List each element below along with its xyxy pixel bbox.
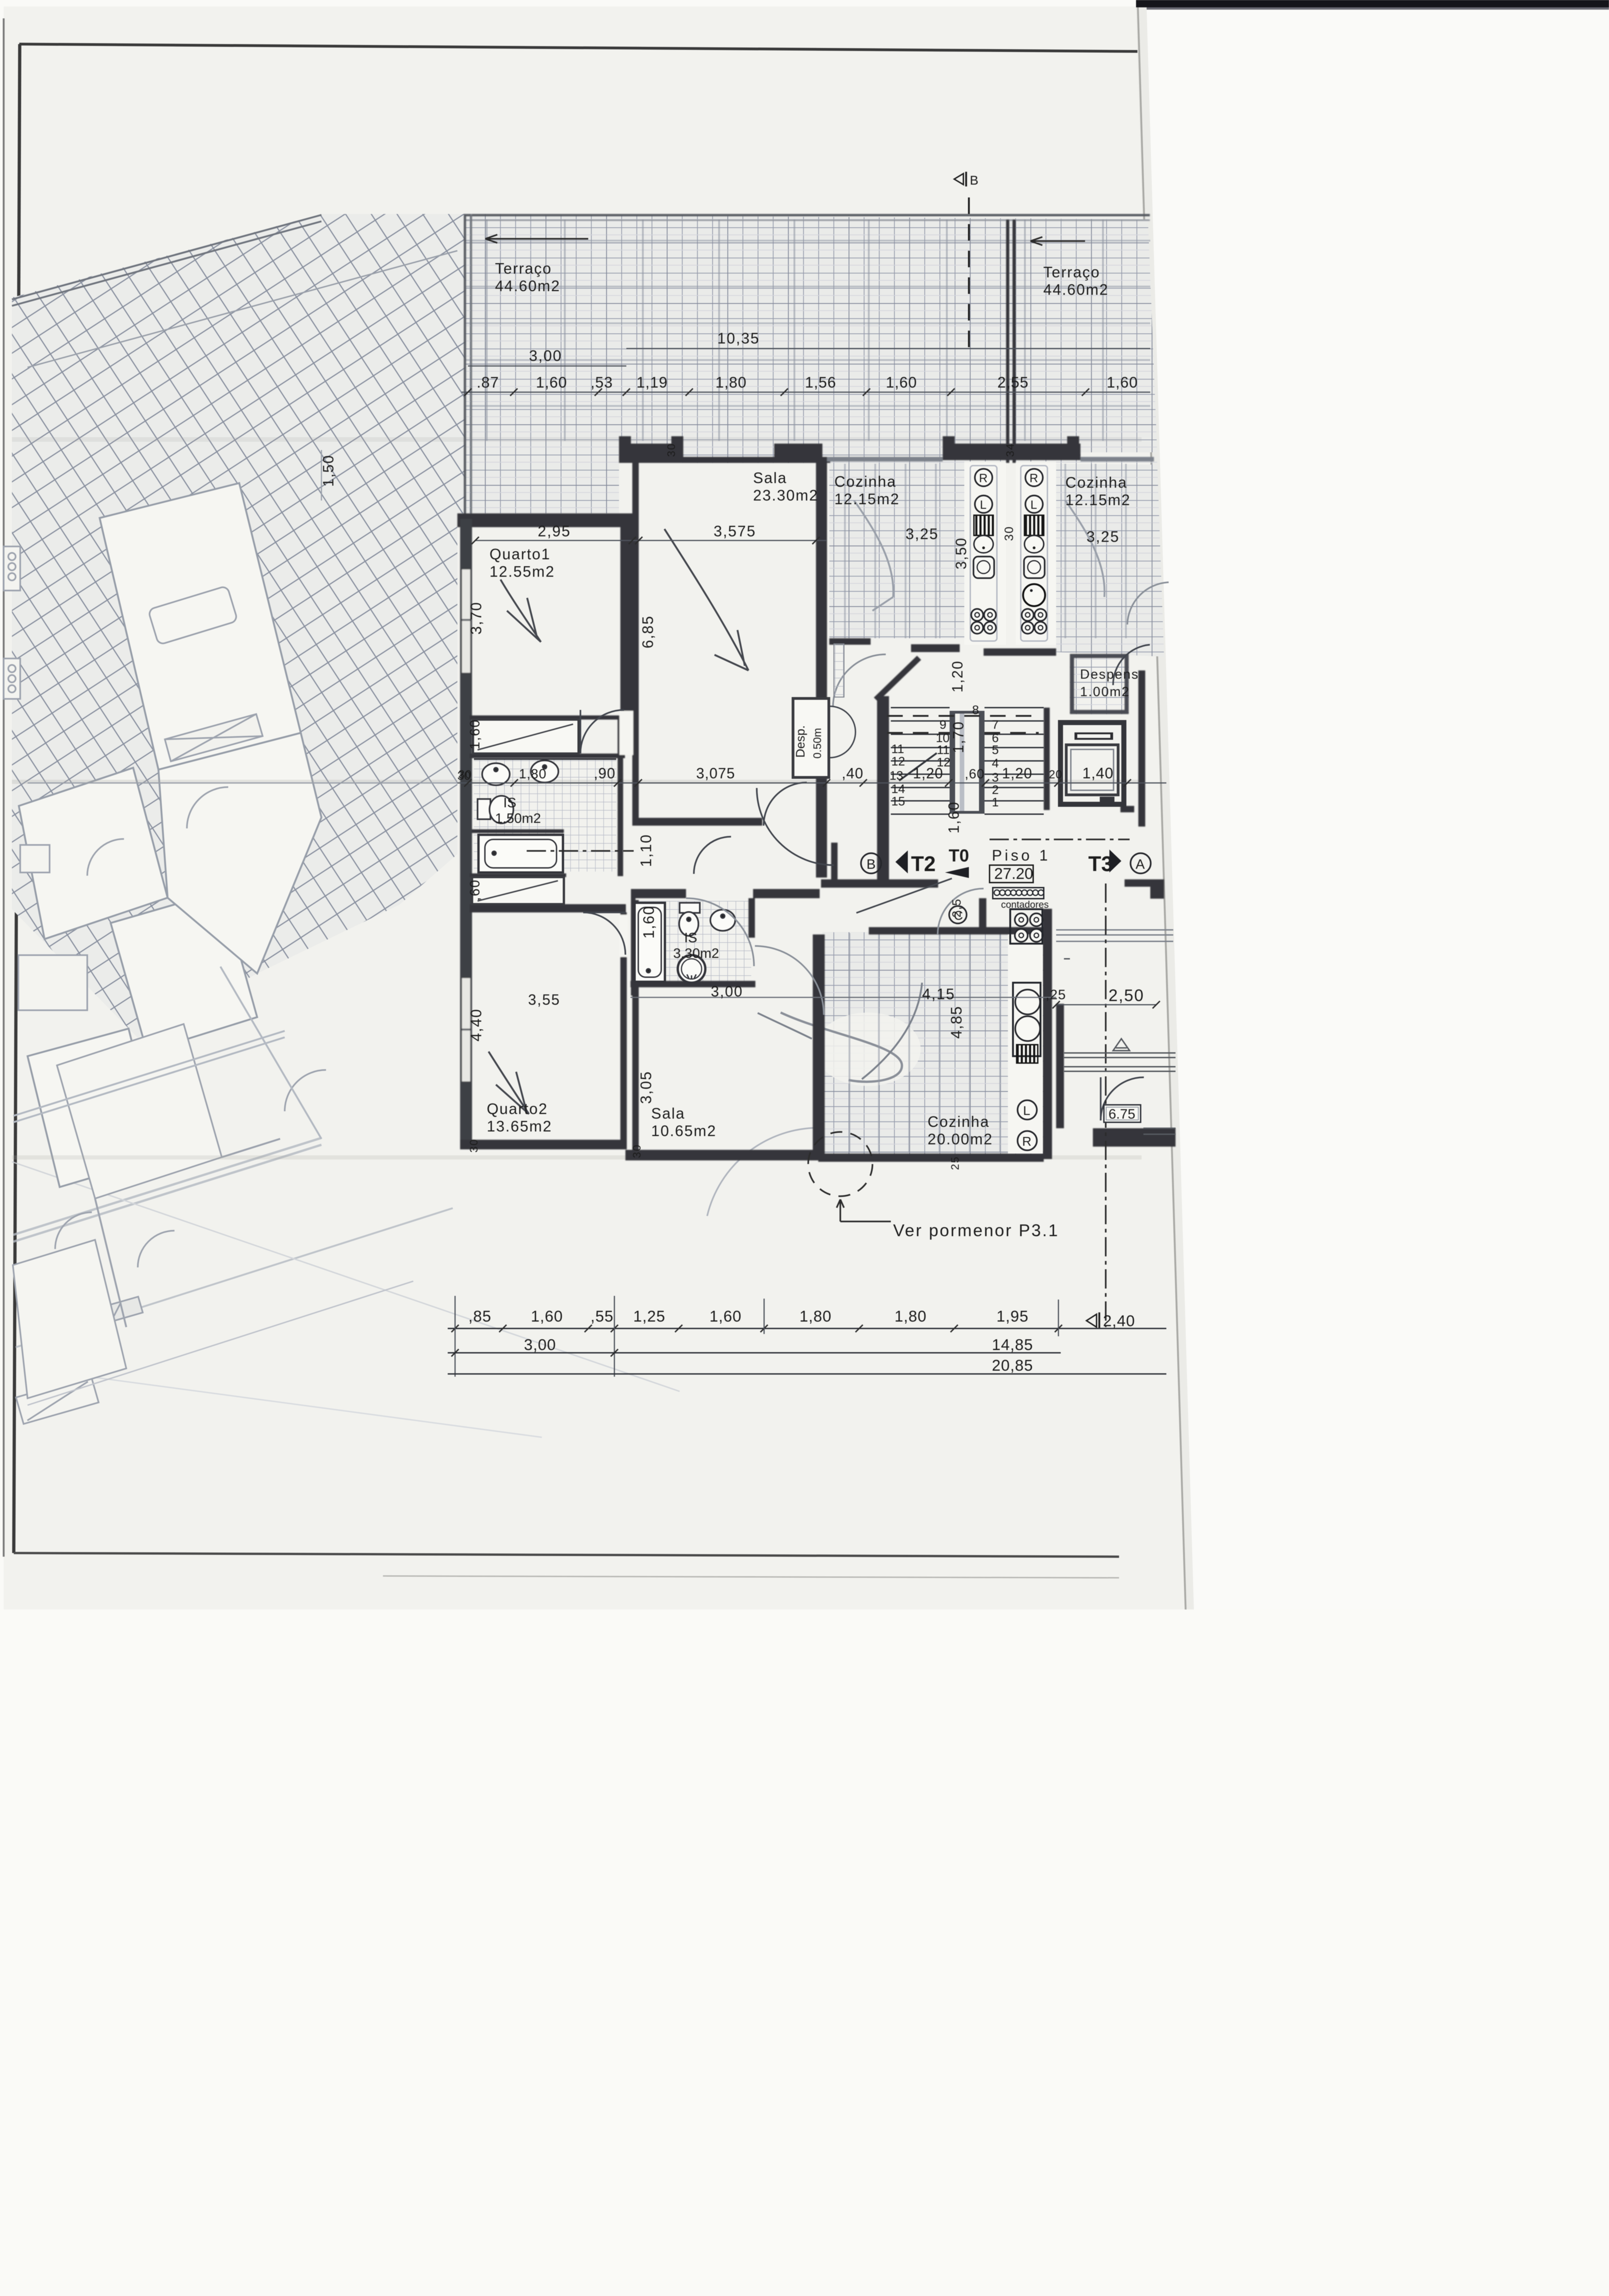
svg-text:12: 12 bbox=[891, 754, 905, 768]
svg-text:8: 8 bbox=[972, 703, 979, 717]
svg-text:1,60: 1,60 bbox=[467, 719, 483, 749]
svg-text:2,55: 2,55 bbox=[997, 374, 1029, 391]
svg-text:4,40: 4,40 bbox=[467, 1008, 484, 1041]
svg-text:1,25: 1,25 bbox=[633, 1308, 665, 1325]
svg-text:,40: ,40 bbox=[842, 765, 863, 782]
svg-text:L: L bbox=[1030, 498, 1037, 512]
svg-text:4: 4 bbox=[992, 756, 999, 770]
svg-text:1,20: 1,20 bbox=[913, 765, 943, 782]
svg-text:1,80: 1,80 bbox=[895, 1308, 927, 1325]
svg-text:3,00: 3,00 bbox=[524, 1336, 556, 1354]
svg-text:.87: .87 bbox=[477, 374, 499, 391]
svg-text:15: 15 bbox=[891, 794, 905, 808]
svg-text:3,50: 3,50 bbox=[953, 537, 969, 569]
svg-text:30: 30 bbox=[665, 443, 678, 457]
svg-text:0.50m: 0.50m bbox=[811, 728, 824, 759]
svg-text:3,70: 3,70 bbox=[467, 602, 484, 635]
svg-text:2,40: 2,40 bbox=[1103, 1312, 1135, 1330]
svg-text:3,075: 3,075 bbox=[696, 765, 735, 782]
svg-text:,60: ,60 bbox=[965, 767, 985, 782]
svg-text:R: R bbox=[1030, 471, 1038, 485]
svg-text:1,20: 1,20 bbox=[949, 660, 966, 692]
svg-text:14: 14 bbox=[891, 782, 905, 796]
svg-text:1,80: 1,80 bbox=[715, 374, 747, 391]
svg-text:Quarto1: Quarto1 bbox=[489, 546, 551, 563]
svg-text:27.20: 27.20 bbox=[994, 865, 1033, 883]
svg-text:3,05: 3,05 bbox=[637, 1071, 654, 1104]
svg-text:1,60: 1,60 bbox=[536, 374, 567, 391]
svg-text:IS: IS bbox=[503, 795, 516, 810]
svg-text:1,56: 1,56 bbox=[805, 374, 836, 391]
svg-text:,85: ,85 bbox=[468, 1308, 491, 1325]
svg-text:contadores: contadores bbox=[1001, 900, 1049, 910]
svg-text:L: L bbox=[980, 498, 986, 512]
svg-text:1,60: 1,60 bbox=[531, 1308, 563, 1325]
svg-text:4,85: 4,85 bbox=[948, 1006, 965, 1039]
svg-text:2,50: 2,50 bbox=[1108, 986, 1144, 1005]
svg-text:1: 1 bbox=[992, 795, 999, 809]
svg-text:IS: IS bbox=[684, 930, 697, 945]
svg-text:T3: T3 bbox=[1088, 852, 1113, 876]
svg-text:,53: ,53 bbox=[591, 374, 613, 391]
svg-text:44.60m2: 44.60m2 bbox=[1043, 281, 1108, 298]
svg-text:3,25: 3,25 bbox=[906, 525, 939, 542]
svg-text:1.50m2: 1.50m2 bbox=[495, 811, 541, 826]
svg-text:9: 9 bbox=[940, 718, 946, 732]
svg-text:13: 13 bbox=[889, 769, 903, 782]
svg-text:2,5: 2,5 bbox=[950, 898, 963, 917]
svg-text:Cozinha: Cozinha bbox=[928, 1113, 990, 1130]
svg-text:Cozinha: Cozinha bbox=[1065, 474, 1127, 491]
svg-text:Terraço: Terraço bbox=[1043, 264, 1100, 281]
svg-text:1,50: 1,50 bbox=[320, 455, 337, 487]
svg-text:13.65m2: 13.65m2 bbox=[487, 1118, 552, 1135]
svg-text:2: 2 bbox=[992, 783, 999, 797]
svg-text:1,40: 1,40 bbox=[1082, 765, 1114, 782]
svg-text:1,60: 1,60 bbox=[886, 374, 917, 391]
svg-text:5: 5 bbox=[992, 743, 999, 757]
svg-text:Terraço: Terraço bbox=[495, 260, 552, 277]
svg-text:3.30m2: 3.30m2 bbox=[673, 946, 719, 961]
svg-text:11: 11 bbox=[891, 742, 904, 756]
svg-text:12.55m2: 12.55m2 bbox=[489, 563, 555, 580]
svg-text:,25: ,25 bbox=[1046, 987, 1066, 1002]
svg-text:Quarto2: Quarto2 bbox=[487, 1100, 548, 1117]
svg-text:3,55: 3,55 bbox=[528, 991, 560, 1008]
svg-text:3,25: 3,25 bbox=[1086, 528, 1120, 545]
svg-text:12.15m2: 12.15m2 bbox=[834, 490, 900, 507]
svg-text:Desp.: Desp. bbox=[793, 725, 807, 758]
svg-text:20: 20 bbox=[1049, 768, 1063, 781]
svg-text:2,95: 2,95 bbox=[538, 523, 571, 540]
svg-text:20,85: 20,85 bbox=[992, 1357, 1033, 1374]
svg-text:1,95: 1,95 bbox=[996, 1308, 1029, 1325]
svg-text:B: B bbox=[866, 857, 876, 872]
svg-text:1,70: 1,70 bbox=[950, 721, 967, 753]
svg-text:1,60: 1,60 bbox=[945, 801, 962, 833]
svg-text:1,80: 1,80 bbox=[519, 767, 546, 782]
svg-text:1,20: 1,20 bbox=[1002, 765, 1032, 782]
svg-text:7: 7 bbox=[992, 718, 999, 732]
svg-text:1,60: 1,60 bbox=[709, 1308, 742, 1325]
svg-text:T0: T0 bbox=[949, 846, 969, 866]
svg-text:1.00m2: 1.00m2 bbox=[1080, 685, 1130, 699]
svg-text:,60: ,60 bbox=[467, 879, 483, 901]
svg-text:Sala: Sala bbox=[651, 1105, 685, 1122]
svg-text:3,00: 3,00 bbox=[711, 983, 743, 1000]
svg-text:B: B bbox=[970, 173, 979, 187]
svg-text:Piso 1: Piso 1 bbox=[992, 847, 1051, 864]
svg-text:1,60: 1,60 bbox=[1107, 374, 1138, 391]
svg-text:14,85: 14,85 bbox=[992, 1336, 1033, 1354]
svg-text:30: 30 bbox=[457, 769, 471, 782]
svg-text:R: R bbox=[979, 471, 988, 485]
svg-text:Cozinha: Cozinha bbox=[834, 473, 896, 490]
svg-text:23.30m2: 23.30m2 bbox=[753, 487, 818, 504]
svg-text:1,80: 1,80 bbox=[799, 1308, 832, 1325]
svg-text:4,15: 4,15 bbox=[922, 985, 955, 1002]
svg-text:Ver pormenor P3.1: Ver pormenor P3.1 bbox=[893, 1221, 1059, 1240]
svg-text:10.65m2: 10.65m2 bbox=[651, 1122, 716, 1139]
svg-text:Sala: Sala bbox=[753, 469, 787, 486]
svg-text:1,10: 1,10 bbox=[637, 834, 654, 867]
svg-text:,90: ,90 bbox=[594, 765, 615, 782]
svg-text:25: 25 bbox=[949, 1156, 962, 1170]
svg-text:12.15m2: 12.15m2 bbox=[1065, 491, 1131, 508]
svg-text:20.00m2: 20.00m2 bbox=[928, 1131, 993, 1148]
svg-text:1,19: 1,19 bbox=[636, 374, 668, 391]
svg-text:30: 30 bbox=[1002, 526, 1016, 541]
svg-text:6.75: 6.75 bbox=[1108, 1107, 1135, 1122]
svg-text:30: 30 bbox=[468, 1138, 480, 1153]
svg-text:1,60: 1,60 bbox=[640, 906, 657, 939]
svg-text:T2: T2 bbox=[911, 852, 936, 876]
svg-text:34: 34 bbox=[1004, 443, 1017, 457]
svg-text:44.60m2: 44.60m2 bbox=[495, 277, 560, 294]
svg-text:10,35: 10,35 bbox=[717, 330, 760, 347]
svg-text:6,85: 6,85 bbox=[639, 615, 656, 648]
svg-text:R: R bbox=[1022, 1134, 1031, 1148]
svg-text:,55: ,55 bbox=[591, 1308, 613, 1325]
svg-text:A: A bbox=[1136, 857, 1145, 872]
svg-text:3,575: 3,575 bbox=[714, 523, 756, 540]
svg-text:3,00: 3,00 bbox=[529, 347, 562, 364]
svg-text:Despens: Despens bbox=[1080, 667, 1139, 682]
svg-text:30: 30 bbox=[631, 1144, 643, 1158]
svg-text:11: 11 bbox=[937, 743, 950, 757]
svg-text:3: 3 bbox=[992, 771, 999, 784]
svg-text:L: L bbox=[1023, 1103, 1030, 1118]
